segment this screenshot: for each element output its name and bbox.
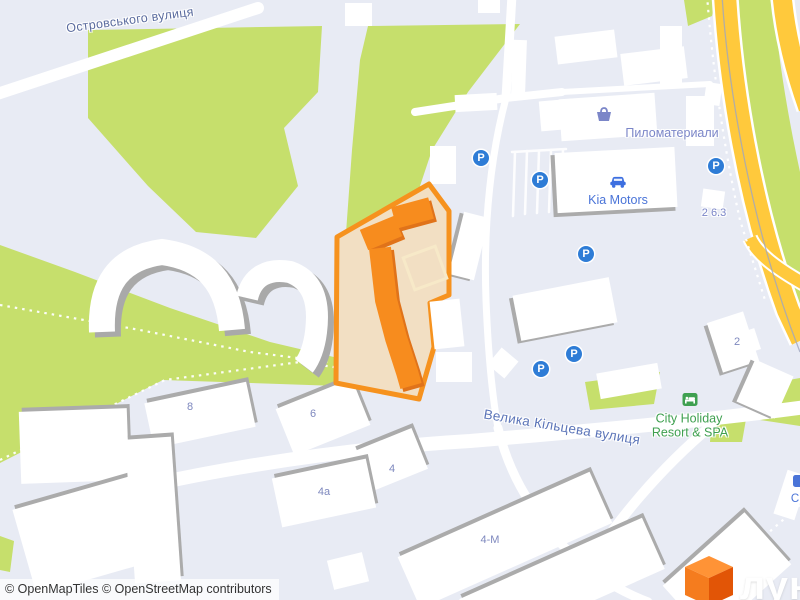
poi-label-kia: Kia Motors (588, 193, 648, 207)
poi-label-resort-line1: City Holiday (656, 413, 723, 426)
building-warehouse (513, 277, 618, 341)
poi-label-clipped: С (791, 493, 799, 505)
lun-cube-icon (680, 554, 738, 600)
house-number-6: 6 (310, 408, 316, 420)
map-attribution[interactable]: © OpenMapTiles © OpenStreetMap contribut… (0, 579, 279, 600)
lun-logo[interactable]: лун (680, 554, 800, 600)
clipped-poi-icon (793, 474, 800, 492)
parking-icon: P (708, 158, 724, 174)
lumber-basket-icon (594, 106, 614, 128)
house-number-4a: 4a (318, 486, 330, 498)
poi-label-resort-line2: Resort & SPA (652, 427, 728, 440)
kia-car-icon (609, 175, 628, 194)
parking-icon: P (578, 246, 594, 262)
poi-label-lumber: Пиломатериали (625, 126, 718, 140)
house-number-8: 8 (187, 401, 193, 413)
parking-icon: P (532, 172, 548, 188)
poi-label-263: 2 6.3 (702, 207, 726, 219)
map-canvas[interactable]: Островського вулиця Велика Кільцева вули… (0, 0, 800, 600)
highway-layer (722, 0, 800, 352)
house-number-2: 2 (734, 336, 740, 348)
resort-lodging-icon (683, 393, 698, 411)
house-number-4: 4 (389, 463, 395, 475)
parking-icon: P (473, 150, 489, 166)
parking-icon: P (533, 361, 549, 377)
buildings-overlay (430, 299, 465, 350)
parking-icon: P (566, 346, 582, 362)
lun-logo-text: лун (740, 566, 800, 600)
map-tiles (0, 0, 800, 600)
house-number-4m: 4-М (481, 534, 500, 546)
